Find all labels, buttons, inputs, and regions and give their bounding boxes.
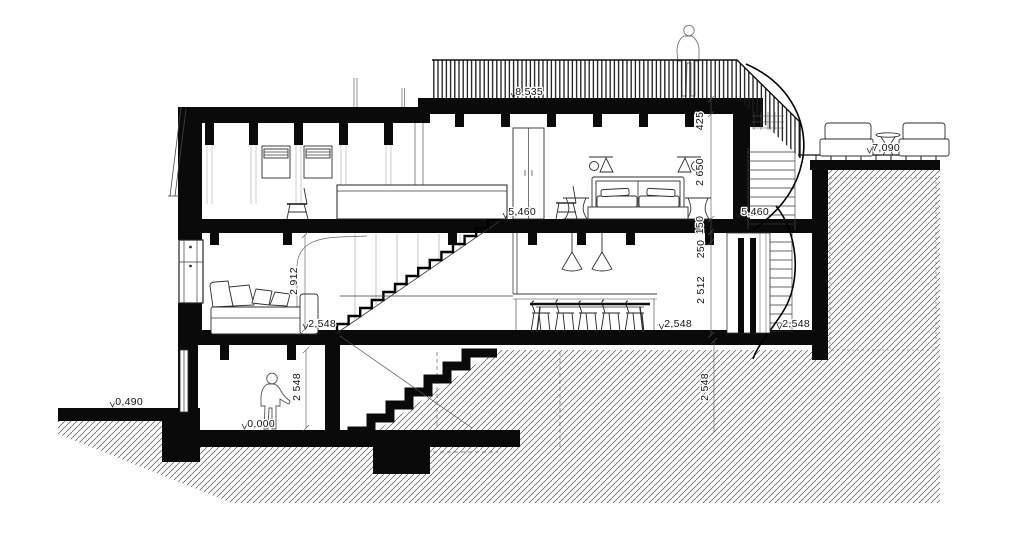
loft-parapet: [337, 185, 507, 219]
living-window: [179, 240, 203, 303]
dining-table: [530, 304, 650, 332]
bed: [588, 177, 688, 219]
dim-floor-thickness: 150: [694, 216, 706, 234]
wall-lamp-left: [589, 157, 613, 172]
level-upper-left: 5,460: [508, 206, 536, 218]
foundation-footing: [373, 447, 430, 474]
roof-joists-left: [205, 123, 393, 145]
roof-step: [418, 98, 430, 123]
roof-slab-left: [178, 107, 427, 123]
level-upper-right: 5,460: [741, 206, 769, 218]
left-wall-upper: [178, 107, 202, 240]
lower-room-right-wall: [325, 345, 340, 430]
terrace-sofa-right: [899, 123, 949, 156]
desk-chair: [287, 188, 308, 219]
mid-slab-joists: [220, 345, 296, 360]
dim-door-head: 250: [695, 240, 707, 258]
upper-floor-slab: [178, 219, 826, 233]
level-terrace: 7,090: [872, 142, 900, 154]
dim-lower-room-height: 2 548: [291, 373, 303, 401]
pendant-lamps: [562, 233, 612, 271]
terrace-sofa-left: [820, 123, 873, 156]
terrace-deck-slab: [810, 160, 940, 170]
dim-door-height: 2 512: [695, 276, 707, 304]
dim-ground-right-depth: 2 548: [699, 373, 711, 401]
dim-roof-parapet: 425: [694, 112, 706, 130]
section-svg: 8,535 5,460 5,460 2,548 2,548 2,548 0,00…: [0, 0, 1024, 533]
roof-flue-pipes: [354, 78, 405, 107]
bedroom-chair: [556, 186, 577, 219]
level-ground-left: 0,490: [115, 396, 143, 408]
left-wall-mid: [178, 303, 202, 345]
roof-slab-right: [418, 98, 737, 114]
ground-line-left: [58, 408, 178, 421]
terrace-door: [727, 233, 770, 333]
roof-joists-right: [455, 114, 694, 127]
level-mid-left: 2,548: [308, 318, 336, 330]
section-drawing: 8,535 5,460 5,460 2,548 2,548 2,548 0,00…: [0, 0, 1024, 533]
level-mid-center: 2,548: [664, 318, 692, 330]
level-lower: 0,000: [247, 418, 275, 430]
dim-bedroom-height: 2 650: [694, 158, 706, 186]
level-mid-right: 2,548: [782, 318, 810, 330]
level-roof: 8,535: [515, 86, 543, 98]
sofa: [210, 281, 318, 334]
terrace-wall: [812, 168, 828, 360]
dim-living-height: 2 912: [288, 267, 300, 295]
loft-wall-frames: [262, 146, 332, 178]
lower-window: [180, 350, 188, 412]
